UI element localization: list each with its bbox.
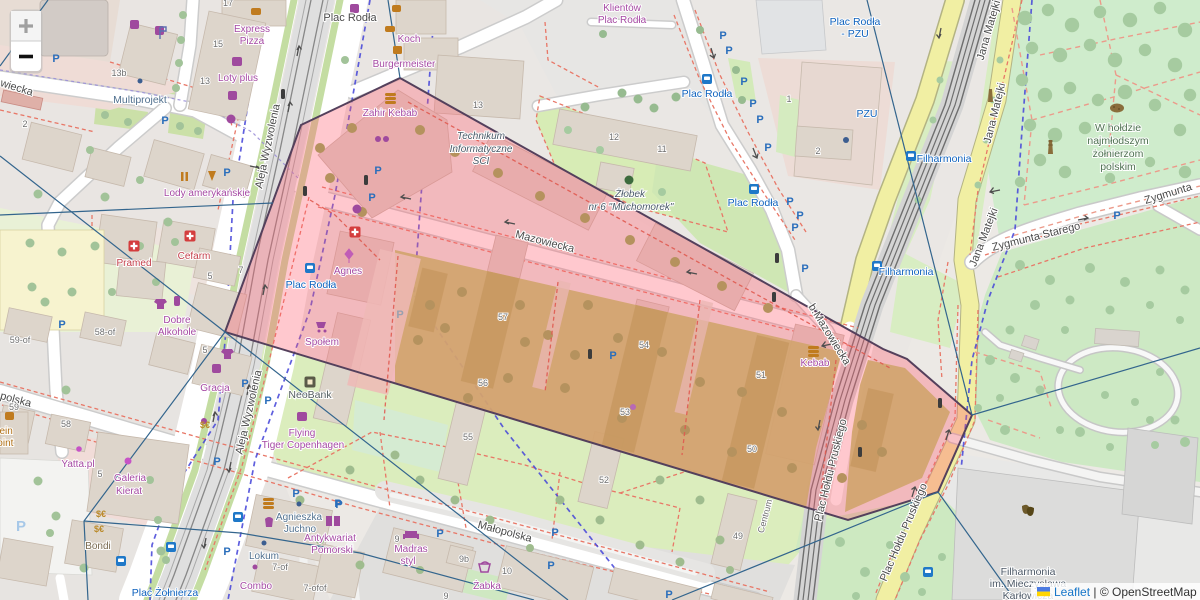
svg-text:P: P	[368, 192, 375, 204]
svg-text:Antykwariat: Antykwariat	[304, 533, 356, 544]
svg-text:9b: 9b	[459, 554, 469, 564]
svg-text:$€: $€	[96, 509, 106, 519]
svg-text:Dobre: Dobre	[163, 315, 191, 326]
svg-text:- PZU: - PZU	[841, 28, 868, 40]
svg-text:P: P	[223, 167, 230, 179]
svg-text:2: 2	[22, 119, 27, 129]
svg-text:Plac Rodła: Plac Rodła	[830, 16, 881, 28]
svg-text:Flying: Flying	[289, 428, 316, 439]
svg-text:Klientów: Klientów	[603, 3, 642, 14]
svg-text:P: P	[436, 528, 443, 540]
svg-text:P: P	[551, 527, 558, 539]
svg-text:10: 10	[502, 566, 512, 576]
svg-text:Technikum: Technikum	[457, 131, 505, 142]
svg-text:7: 7	[238, 265, 243, 275]
svg-text:P: P	[1113, 210, 1120, 222]
svg-text:P: P	[223, 546, 230, 558]
svg-text:Społem: Społem	[305, 337, 339, 348]
svg-text:Kebab: Kebab	[801, 358, 830, 369]
svg-text:styl: styl	[401, 556, 416, 567]
svg-text:Plac Rodła: Plac Rodła	[323, 12, 377, 24]
svg-text:7-of: 7-of	[272, 562, 288, 572]
svg-text:Pomorski: Pomorski	[311, 545, 353, 556]
svg-text:12: 12	[609, 132, 619, 142]
svg-text:Galeria: Galeria	[114, 473, 147, 484]
svg-text:Leaflet | © OpenStreetMap: Leaflet | © OpenStreetMap	[1054, 585, 1197, 599]
svg-text:Agnieszka: Agnieszka	[276, 512, 323, 523]
svg-text:najmłodszym: najmłodszym	[1087, 135, 1149, 147]
svg-text:Alkohole: Alkohole	[158, 327, 197, 338]
svg-text:9: 9	[394, 534, 399, 544]
svg-text:P: P	[791, 222, 798, 234]
svg-text:Plac Rodła: Plac Rodła	[286, 279, 337, 291]
svg-text:Filharmonia: Filharmonia	[1001, 566, 1056, 578]
svg-text:Plac Rodła: Plac Rodła	[598, 15, 647, 26]
svg-text:Filharmonia: Filharmonia	[879, 266, 934, 278]
svg-text:55: 55	[463, 432, 473, 442]
svg-text:Yatta.pl: Yatta.pl	[61, 459, 94, 470]
svg-text:50: 50	[747, 444, 757, 454]
svg-text:13: 13	[200, 76, 210, 86]
svg-text:$€: $€	[200, 420, 210, 430]
svg-text:P: P	[740, 76, 747, 88]
svg-text:Burgermeister: Burgermeister	[373, 59, 436, 70]
svg-text:Koch: Koch	[398, 34, 421, 45]
svg-text:52: 52	[599, 475, 609, 485]
svg-text:15: 15	[213, 39, 223, 49]
svg-text:Point: Point	[0, 438, 14, 449]
svg-text:Lokum: Lokum	[249, 551, 279, 562]
svg-text:Madras: Madras	[394, 544, 427, 555]
svg-text:Pizza: Pizza	[240, 36, 265, 47]
svg-text:57: 57	[498, 312, 508, 322]
svg-text:P: P	[719, 30, 726, 42]
svg-text:W hołdzie: W hołdzie	[1095, 122, 1141, 134]
svg-text:53: 53	[620, 407, 630, 417]
svg-text:11: 11	[657, 144, 666, 154]
svg-text:Zahir Kebab: Zahir Kebab	[363, 108, 418, 119]
svg-text:P: P	[213, 456, 220, 468]
svg-text:Pramed: Pramed	[116, 258, 151, 269]
svg-text:59-of: 59-of	[10, 335, 31, 345]
svg-text:Tiger Copenhagen: Tiger Copenhagen	[262, 440, 344, 451]
svg-text:otein: otein	[0, 426, 13, 437]
svg-text:Cefarm: Cefarm	[178, 251, 211, 262]
svg-text:51: 51	[756, 370, 766, 380]
svg-text:NeoBank: NeoBank	[288, 389, 332, 401]
svg-text:Gracja: Gracja	[200, 383, 230, 394]
svg-text:P: P	[801, 263, 808, 275]
svg-text:Multiprojekt: Multiprojekt	[113, 94, 167, 106]
svg-text:Loty plus: Loty plus	[218, 73, 258, 84]
svg-text:Agnes: Agnes	[334, 266, 362, 277]
svg-text:9: 9	[443, 591, 448, 600]
svg-text:Plac Rodła: Plac Rodła	[728, 197, 779, 209]
svg-text:54: 54	[639, 340, 649, 350]
svg-text:P: P	[764, 142, 771, 154]
svg-text:1: 1	[786, 94, 791, 104]
svg-text:Plac Żołnierza: Plac Żołnierza	[132, 586, 199, 599]
svg-text:13: 13	[473, 100, 483, 110]
svg-text:5: 5	[97, 469, 102, 479]
svg-text:P: P	[749, 98, 756, 110]
svg-text:P: P	[292, 488, 299, 500]
svg-text:P: P	[58, 319, 65, 331]
svg-text:Kierat: Kierat	[116, 486, 142, 497]
svg-text:13b: 13b	[111, 68, 126, 78]
svg-text:nr 6 "Muchomorek": nr 6 "Muchomorek"	[589, 202, 674, 213]
svg-text:17: 17	[223, 0, 233, 8]
svg-text:Combo: Combo	[240, 581, 273, 592]
svg-text:Żabka: Żabka	[473, 579, 501, 592]
svg-text:Żłobek: Żłobek	[614, 188, 646, 200]
svg-text:P: P	[161, 115, 168, 127]
svg-text:Informatyczne: Informatyczne	[450, 144, 513, 155]
svg-text:SCI: SCI	[473, 156, 490, 167]
svg-text:żołnierzom: żołnierzom	[1093, 148, 1144, 160]
svg-text:56: 56	[478, 378, 488, 388]
svg-text:$€: $€	[94, 524, 104, 534]
svg-text:P: P	[52, 53, 59, 65]
svg-text:Bondi: Bondi	[85, 541, 111, 552]
svg-text:P: P	[796, 210, 803, 222]
svg-text:Lody amerykańskie: Lody amerykańskie	[164, 188, 251, 199]
svg-text:5: 5	[207, 271, 212, 281]
svg-text:P: P	[16, 518, 26, 535]
svg-text:7-ofof: 7-ofof	[303, 583, 327, 593]
svg-text:Express: Express	[234, 24, 270, 35]
svg-text:P: P	[786, 196, 793, 208]
svg-text:polskim: polskim	[1100, 161, 1136, 173]
svg-text:P: P	[665, 589, 672, 600]
svg-text:58-of: 58-of	[95, 327, 116, 337]
svg-text:P: P	[609, 350, 616, 362]
svg-text:5: 5	[202, 345, 207, 355]
svg-text:P: P	[264, 395, 271, 407]
svg-text:58: 58	[61, 419, 71, 429]
svg-text:P: P	[374, 165, 381, 177]
svg-text:P: P	[547, 560, 554, 572]
svg-text:59: 59	[9, 402, 19, 412]
svg-text:49: 49	[733, 531, 743, 541]
svg-text:Plac Rodła: Plac Rodła	[682, 88, 733, 100]
svg-text:Filharmonia: Filharmonia	[917, 153, 972, 165]
svg-text:P: P	[756, 114, 763, 126]
svg-text:P: P	[396, 309, 403, 321]
svg-text:2: 2	[815, 146, 820, 156]
svg-text:PZU: PZU	[857, 108, 878, 120]
svg-text:P: P	[725, 45, 732, 57]
svg-text:P: P	[334, 498, 341, 510]
